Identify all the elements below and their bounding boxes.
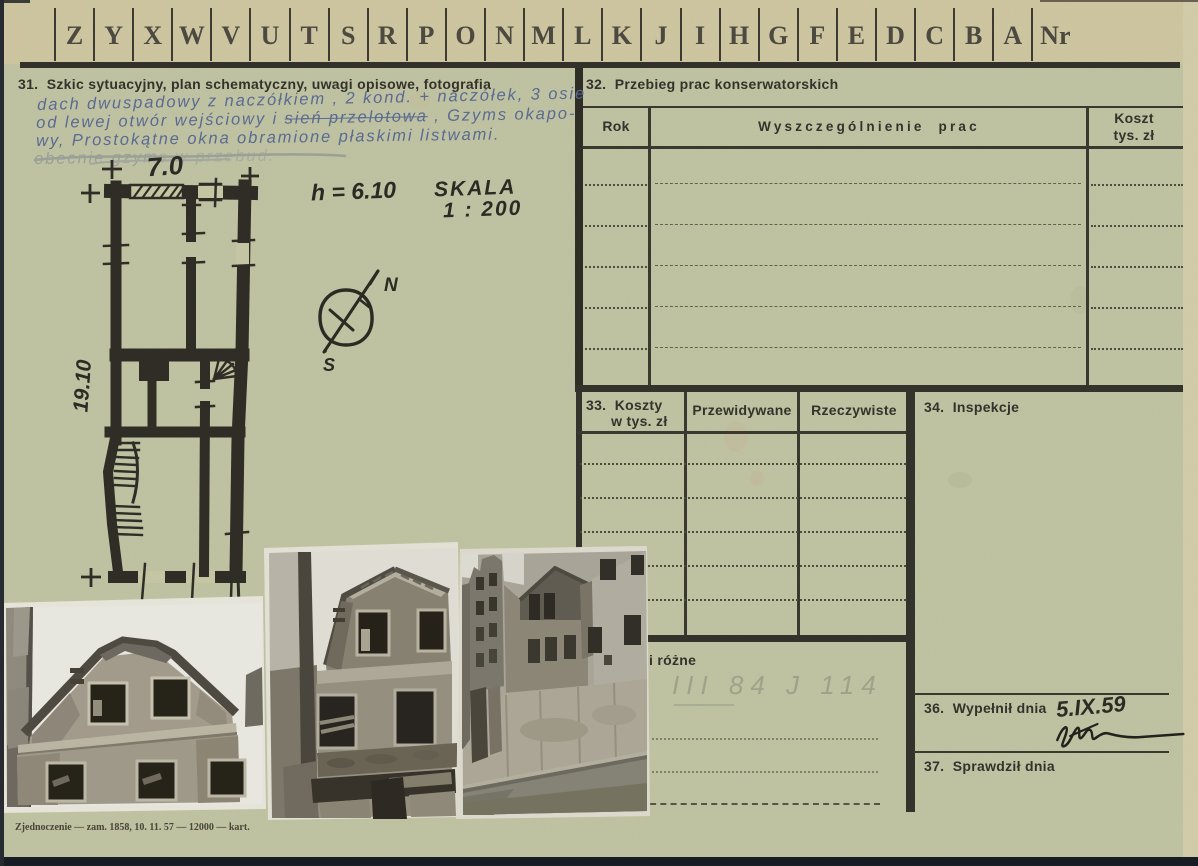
svg-text:N: N: [384, 275, 399, 296]
svg-text:S: S: [323, 355, 335, 375]
